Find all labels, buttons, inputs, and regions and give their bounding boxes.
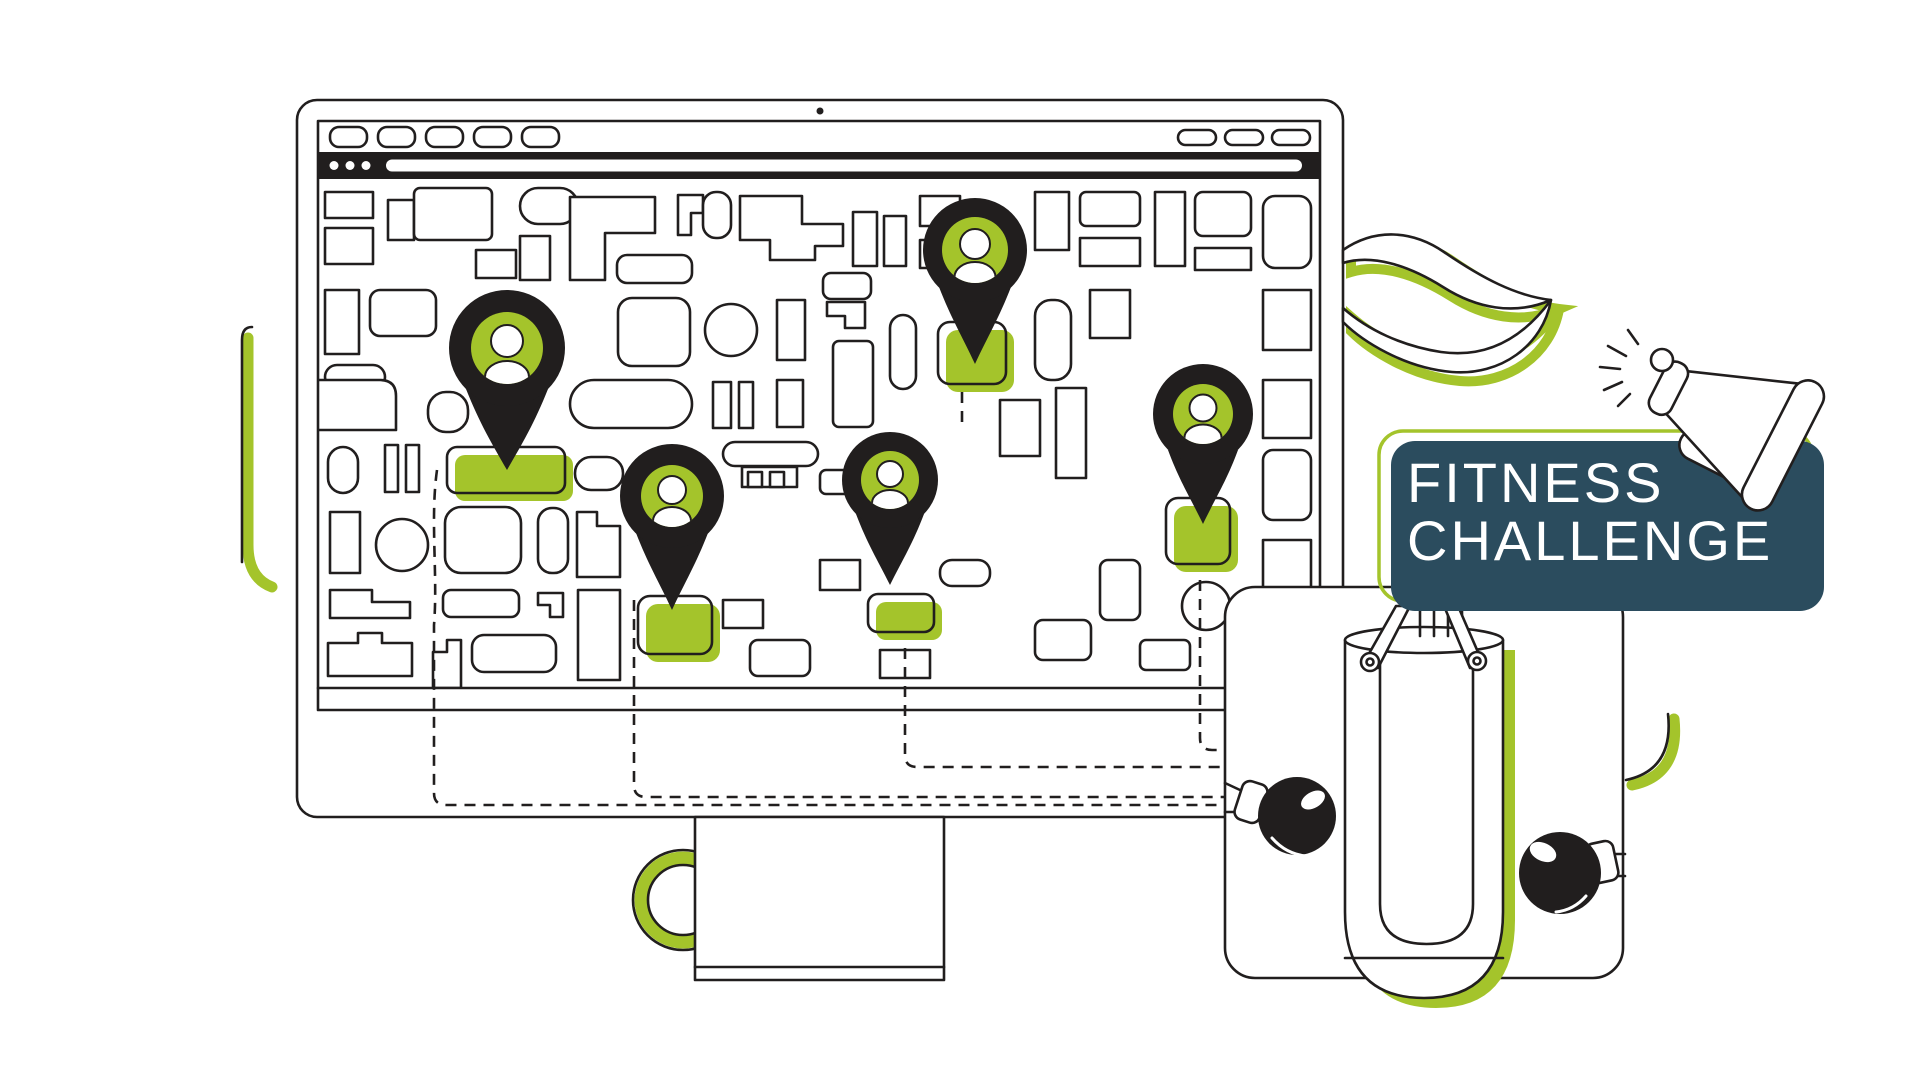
browser-window bbox=[318, 121, 1320, 710]
badge-line1: FITNESS bbox=[1407, 451, 1664, 514]
punching-bag-icon bbox=[1345, 627, 1515, 1008]
leaf-icon bbox=[1343, 234, 1559, 381]
browser-tab[interactable] bbox=[474, 127, 511, 147]
monitor bbox=[297, 100, 1343, 817]
window-control-icon[interactable] bbox=[1272, 130, 1310, 145]
browser-tab[interactable] bbox=[378, 127, 415, 147]
browser-tab[interactable] bbox=[426, 127, 463, 147]
megaphone-knob bbox=[1651, 349, 1673, 371]
menu-dot-icon[interactable] bbox=[362, 161, 371, 170]
fitness-challenge-illustration: FITNESS CHALLENGE bbox=[0, 0, 1920, 1080]
illustration-canvas: FITNESS CHALLENGE bbox=[0, 0, 1920, 1080]
url-field[interactable] bbox=[386, 160, 1302, 172]
punching-bag-card bbox=[1225, 587, 1675, 1008]
monitor-stand bbox=[695, 817, 944, 980]
window-control-icon[interactable] bbox=[1178, 130, 1216, 145]
hook-icon bbox=[1626, 714, 1675, 785]
browser-tab[interactable] bbox=[330, 127, 367, 147]
camera-dot-icon bbox=[817, 108, 824, 115]
address-bar bbox=[318, 152, 1320, 179]
window-control-icon[interactable] bbox=[1225, 130, 1263, 145]
megaphone-rays bbox=[1600, 330, 1638, 406]
left-stem-decoration bbox=[242, 327, 272, 587]
menu-dot-icon[interactable] bbox=[346, 161, 355, 170]
badge-line2: CHALLENGE bbox=[1407, 509, 1773, 572]
menu-dot-icon[interactable] bbox=[330, 161, 339, 170]
browser-tab[interactable] bbox=[522, 127, 559, 147]
